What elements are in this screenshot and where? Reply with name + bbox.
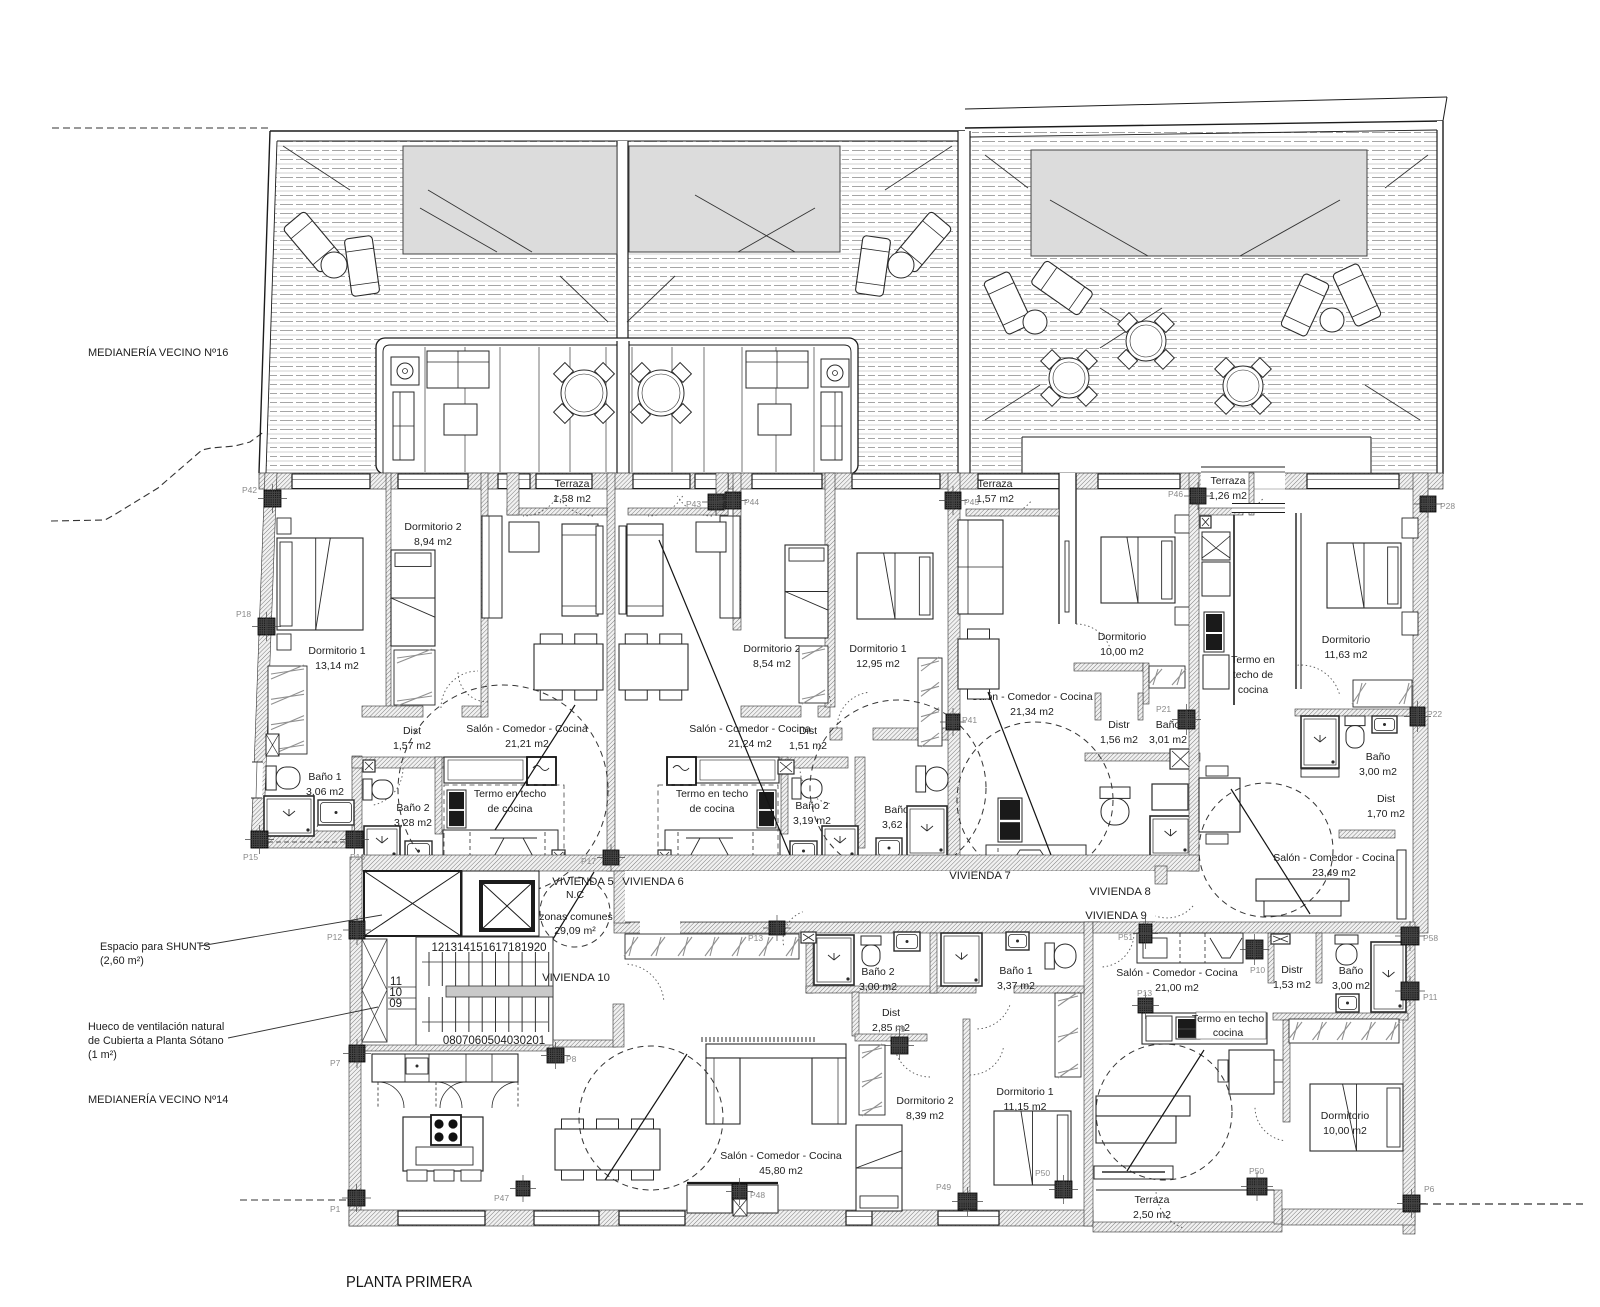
svg-text:8,94 m2: 8,94 m2 <box>414 536 452 548</box>
svg-text:21,00 m2: 21,00 m2 <box>1155 982 1199 994</box>
svg-text:Dormitorio 1: Dormitorio 1 <box>308 645 365 657</box>
svg-text:Espacio para SHUNTS: Espacio para SHUNTS <box>100 941 210 953</box>
svg-text:Dormitorio 2: Dormitorio 2 <box>896 1095 953 1107</box>
svg-text:1,56 m2: 1,56 m2 <box>1100 734 1138 746</box>
svg-text:P50: P50 <box>1035 1168 1050 1178</box>
svg-text:23,49 m2: 23,49 m2 <box>1312 867 1356 879</box>
svg-text:21,24 m2: 21,24 m2 <box>728 738 772 750</box>
svg-text:P13: P13 <box>748 933 763 943</box>
svg-text:P28: P28 <box>1440 501 1455 511</box>
svg-text:Salón - Comedor - Cocina: Salón - Comedor - Cocina <box>689 723 811 735</box>
svg-text:P44: P44 <box>744 497 759 507</box>
svg-text:P16: P16 <box>350 852 365 862</box>
svg-text:P11: P11 <box>1423 992 1438 1002</box>
svg-text:Baño 2: Baño 2 <box>396 802 429 814</box>
svg-text:P47: P47 <box>494 1193 509 1203</box>
svg-text:13,14 m2: 13,14 m2 <box>315 660 359 672</box>
svg-text:2,50 m2: 2,50 m2 <box>1133 1209 1171 1221</box>
svg-text:(2,60 m²): (2,60 m²) <box>100 955 144 967</box>
svg-text:3,00 m2: 3,00 m2 <box>1359 766 1397 778</box>
svg-text:MEDIANERÍA VECINO Nº16: MEDIANERÍA VECINO Nº16 <box>88 346 228 359</box>
svg-text:09: 09 <box>389 998 402 1010</box>
svg-text:P18: P18 <box>236 609 251 619</box>
svg-text:Dormitorio: Dormitorio <box>1321 1110 1370 1122</box>
svg-text:Dist: Dist <box>1377 793 1395 805</box>
svg-text:Dormitorio 1: Dormitorio 1 <box>996 1086 1053 1098</box>
svg-text:Termo en techo: Termo en techo <box>474 788 547 800</box>
svg-text:techo de: techo de <box>1233 669 1273 681</box>
svg-text:Salón - Comedor - Cocina: Salón - Comedor - Cocina <box>720 1150 842 1162</box>
svg-text:VIVIENDA 5: VIVIENDA 5 <box>552 876 614 888</box>
svg-text:P7: P7 <box>330 1058 341 1068</box>
svg-text:Dist: Dist <box>403 725 421 737</box>
svg-text:11,63 m2: 11,63 m2 <box>1325 649 1368 661</box>
svg-text:Baño 1: Baño 1 <box>308 771 341 783</box>
svg-text:Distr: Distr <box>1281 964 1303 976</box>
svg-text:P22: P22 <box>1427 709 1442 719</box>
svg-text:VIVIENDA 10: VIVIENDA 10 <box>542 972 610 984</box>
svg-text:P17: P17 <box>581 856 596 866</box>
svg-text:8,54 m2: 8,54 m2 <box>753 658 791 670</box>
svg-text:N.C: N.C <box>566 889 585 901</box>
svg-text:P6: P6 <box>1424 1184 1435 1194</box>
svg-text:zonas comunes: zonas comunes <box>539 911 613 923</box>
svg-text:Terraza: Terraza <box>1134 1194 1169 1206</box>
svg-text:Dormitorio: Dormitorio <box>1322 634 1371 646</box>
svg-text:Termo en techo: Termo en techo <box>1192 1013 1265 1025</box>
svg-text:MEDIANERÍA VECINO Nº14: MEDIANERÍA VECINO Nº14 <box>88 1093 228 1106</box>
svg-text:VIVIENDA 7: VIVIENDA 7 <box>949 870 1011 882</box>
svg-text:21,21 m2: 21,21 m2 <box>505 738 549 750</box>
svg-text:(1 m²): (1 m²) <box>88 1049 117 1061</box>
svg-text:P21: P21 <box>1156 704 1171 714</box>
svg-text:P43: P43 <box>686 499 701 509</box>
svg-text:Termo en techo: Termo en techo <box>676 788 749 800</box>
svg-text:Hueco de ventilación natural: Hueco de ventilación natural <box>88 1021 224 1033</box>
svg-text:Salón - Comedor - Cocina: Salón - Comedor - Cocina <box>1116 967 1238 979</box>
svg-text:1,57 m2: 1,57 m2 <box>976 493 1014 505</box>
svg-text:VIVIENDA 8: VIVIENDA 8 <box>1089 886 1151 898</box>
svg-text:Terraza: Terraza <box>1210 475 1245 487</box>
svg-text:P45: P45 <box>964 497 979 507</box>
svg-text:Terraza: Terraza <box>554 478 589 490</box>
svg-text:Baño: Baño <box>1156 719 1181 731</box>
svg-text:de Cubierta a Planta Sótano: de Cubierta a Planta Sótano <box>88 1035 224 1047</box>
svg-text:Baño: Baño <box>1339 965 1364 977</box>
svg-text:Distr: Distr <box>1108 719 1130 731</box>
svg-text:P1: P1 <box>330 1204 341 1214</box>
svg-text:de cocina: de cocina <box>488 803 533 815</box>
svg-text:PLANTA PRIMERA: PLANTA PRIMERA <box>346 1274 473 1291</box>
svg-text:12,95 m2: 12,95 m2 <box>856 658 900 670</box>
svg-text:Terraza: Terraza <box>977 478 1012 490</box>
svg-text:10,00 m2: 10,00 m2 <box>1323 1125 1367 1137</box>
svg-text:8,39 m2: 8,39 m2 <box>906 1110 944 1122</box>
svg-text:Dormitorio 1: Dormitorio 1 <box>849 643 906 655</box>
svg-text:cocina: cocina <box>1213 1027 1244 1039</box>
svg-text:Baño 2: Baño 2 <box>861 966 894 978</box>
svg-text:VIVIENDA 6: VIVIENDA 6 <box>622 876 684 888</box>
svg-text:3,37 m2: 3,37 m2 <box>997 980 1035 992</box>
svg-text:Dormitorio 2: Dormitorio 2 <box>743 643 800 655</box>
svg-text:P46: P46 <box>1168 489 1183 499</box>
svg-text:1,26 m2: 1,26 m2 <box>1209 490 1247 502</box>
svg-text:P48: P48 <box>750 1190 765 1200</box>
svg-text:3,01 m2: 3,01 m2 <box>1149 734 1187 746</box>
svg-text:Salón - Comedor - Cocina: Salón - Comedor - Cocina <box>466 723 588 735</box>
svg-text:1,70 m2: 1,70 m2 <box>1367 808 1405 820</box>
svg-text:3,00 m2: 3,00 m2 <box>859 981 897 993</box>
svg-text:P49: P49 <box>936 1182 951 1192</box>
svg-text:P13: P13 <box>1137 988 1152 998</box>
svg-text:P8: P8 <box>566 1054 577 1064</box>
svg-text:P58: P58 <box>1423 933 1438 943</box>
svg-text:11,15 m2: 11,15 m2 <box>1004 1101 1047 1113</box>
svg-text:Salón - Comedor - Cocina: Salón - Comedor - Cocina <box>1273 852 1395 864</box>
svg-text:Termo en: Termo en <box>1231 654 1275 666</box>
svg-text:P42: P42 <box>242 485 257 495</box>
svg-text:P10: P10 <box>1250 965 1265 975</box>
svg-text:29,09 m²: 29,09 m² <box>554 925 596 937</box>
svg-text:1,53 m2: 1,53 m2 <box>1273 979 1311 991</box>
svg-text:3,00 m2: 3,00 m2 <box>1332 980 1370 992</box>
svg-text:P51: P51 <box>1118 932 1133 942</box>
svg-text:45,80 m2: 45,80 m2 <box>759 1165 803 1177</box>
svg-text:Dormitorio 2: Dormitorio 2 <box>404 521 461 533</box>
svg-text:P12: P12 <box>327 932 342 942</box>
svg-text:121314151617181920: 121314151617181920 <box>431 942 546 954</box>
svg-text:cocina: cocina <box>1238 684 1269 696</box>
svg-text:Dormitorio: Dormitorio <box>1098 631 1147 643</box>
svg-text:VIVIENDA 9: VIVIENDA 9 <box>1085 910 1147 922</box>
svg-text:10,00 m2: 10,00 m2 <box>1100 646 1144 658</box>
svg-text:Baño 1: Baño 1 <box>999 965 1032 977</box>
svg-text:Dist: Dist <box>882 1007 900 1019</box>
svg-text:1,58 m2: 1,58 m2 <box>553 493 591 505</box>
svg-text:21,34 m2: 21,34 m2 <box>1010 706 1054 718</box>
svg-text:1,57 m2: 1,57 m2 <box>393 740 431 752</box>
svg-text:Baño: Baño <box>1366 751 1391 763</box>
svg-text:P15: P15 <box>243 852 258 862</box>
svg-text:P50: P50 <box>1249 1166 1264 1176</box>
svg-text:1,51 m2: 1,51 m2 <box>789 740 827 752</box>
svg-text:de cocina: de cocina <box>690 803 735 815</box>
svg-text:P41: P41 <box>962 715 977 725</box>
svg-text:P9: P9 <box>895 1024 906 1034</box>
